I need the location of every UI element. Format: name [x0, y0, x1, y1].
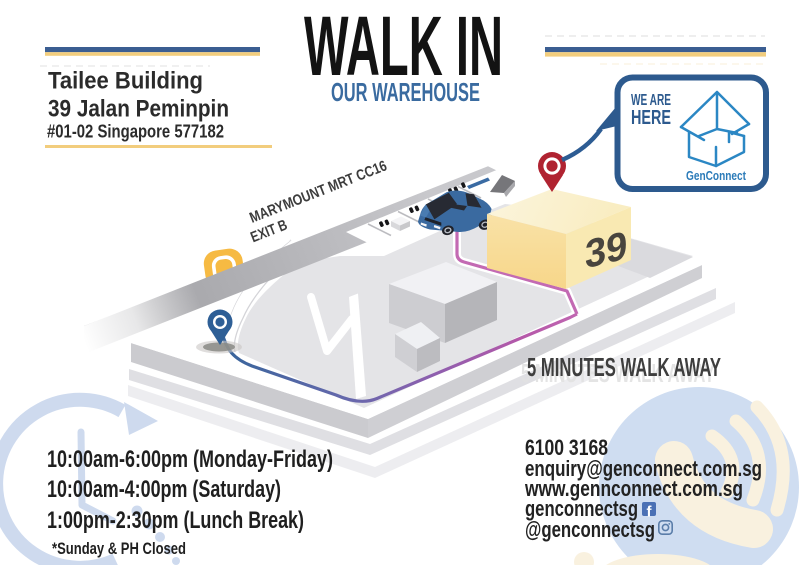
svg-text:@genconnectsg: @genconnectsg [525, 517, 655, 542]
svg-text:10:00am-4:00pm (Saturday): 10:00am-4:00pm (Saturday) [47, 476, 281, 503]
svg-text:HERE: HERE [631, 106, 671, 129]
svg-text:5 MINUTES WALK AWAY: 5 MINUTES WALK AWAY [527, 352, 721, 382]
svg-text:*Sunday & PH Closed: *Sunday & PH Closed [52, 539, 186, 558]
svg-text:39 Jalan Peminpin: 39 Jalan Peminpin [48, 96, 229, 123]
svg-text:#01-02 Singapore 577182: #01-02 Singapore 577182 [47, 122, 224, 142]
svg-text:1:00pm-2:30pm (Lunch Break): 1:00pm-2:30pm (Lunch Break) [47, 507, 304, 534]
svg-text:Tailee Building: Tailee Building [48, 68, 203, 95]
svg-text:10:00am-6:00pm (Monday-Friday): 10:00am-6:00pm (Monday-Friday) [47, 446, 333, 473]
svg-text:GenConnect: GenConnect [686, 168, 747, 183]
svg-text:OUR WAREHOUSE: OUR WAREHOUSE [331, 77, 480, 107]
